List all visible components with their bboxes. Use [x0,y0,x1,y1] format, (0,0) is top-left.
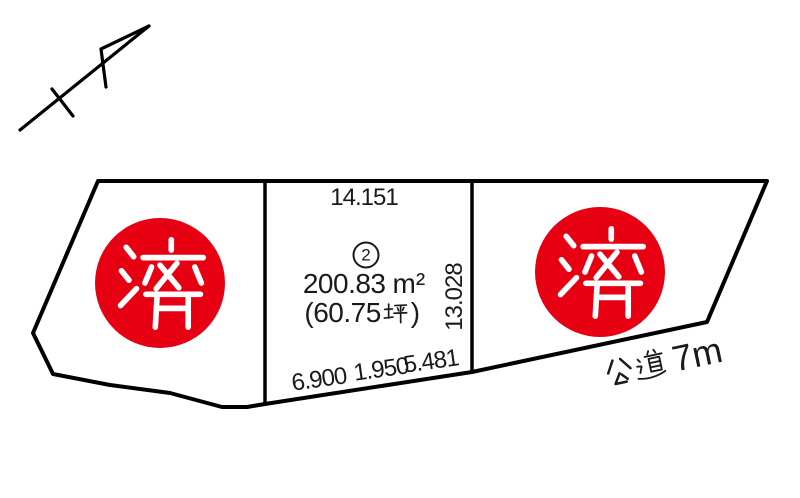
north-arrow-icon [20,26,149,130]
tsubo-prefix: (60.75 [304,297,380,329]
kanji-dou-icon [631,346,668,383]
kanji-tsubo-icon [384,301,408,325]
plot-number: 2 [361,247,370,264]
sold-stamp-left: 済 [95,218,225,348]
area-unit: m² [392,268,425,300]
land-plot-diagram: 14.151 13.028 6.900 1.950 5.481 2 200.83… [0,0,800,498]
tsubo-suffix: ) [411,297,420,329]
area-value: 200.83 [303,268,386,300]
plot-number-badge: 2 [353,242,380,269]
plot-area-m2: 200.83 m² [303,268,425,300]
plot-area-tsubo: (60.75 坪 ) [304,297,419,329]
road-distance: 7m [669,332,725,378]
dimension-top: 14.151 [330,184,397,212]
dimension-right: 13.028 [441,263,469,330]
sold-stamp-right: 済 [535,207,665,337]
kanji-sumi-icon [553,225,647,319]
kanji-sumi-icon [113,236,207,330]
